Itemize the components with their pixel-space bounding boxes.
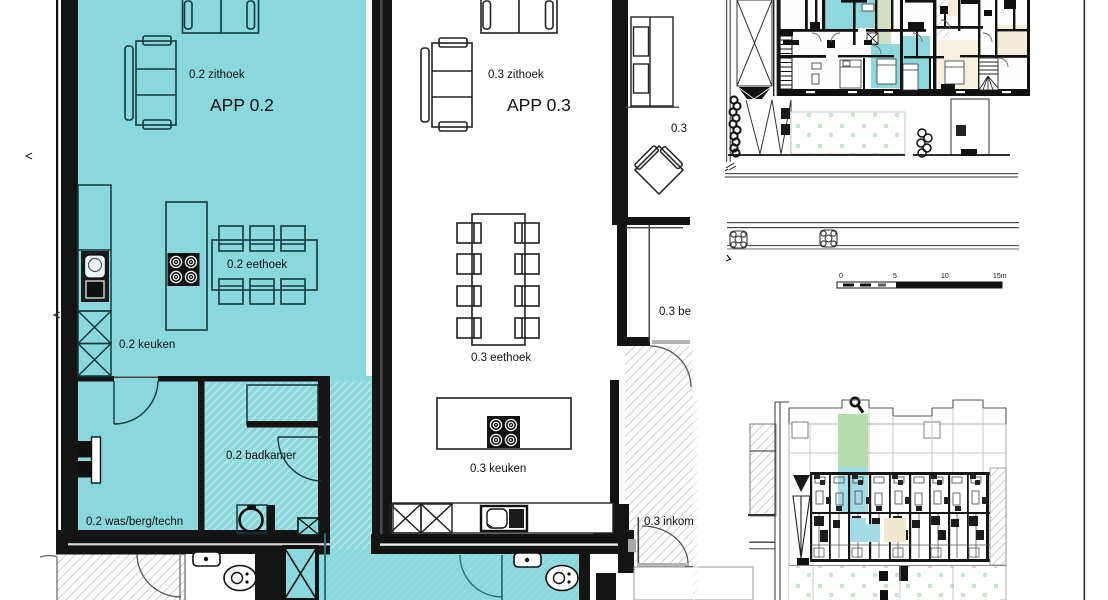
svg-text:5: 5 xyxy=(893,273,897,280)
svg-text:0.2 zithoek: 0.2 zithoek xyxy=(189,69,245,81)
svg-text:15m: 15m xyxy=(993,273,1007,280)
svg-text:0.3: 0.3 xyxy=(671,123,687,135)
svg-text:0.3 be: 0.3 be xyxy=(659,306,691,318)
svg-text:0.3 inkom: 0.3 inkom xyxy=(644,516,694,528)
svg-text:APP 0.2: APP 0.2 xyxy=(210,95,274,115)
svg-text:0.2 badkamer: 0.2 badkamer xyxy=(226,450,296,462)
svg-text:APP 0.3: APP 0.3 xyxy=(507,95,571,115)
svg-text:0.2 keuken: 0.2 keuken xyxy=(119,339,175,351)
svg-text:0.2 was/berg/techn: 0.2 was/berg/techn xyxy=(86,516,183,528)
svg-text:0.3 zithoek: 0.3 zithoek xyxy=(488,69,544,81)
svg-text:0.3 eethoek: 0.3 eethoek xyxy=(471,352,531,364)
svg-text:0.3 keuken: 0.3 keuken xyxy=(470,463,526,475)
svg-text:10: 10 xyxy=(941,273,949,280)
svg-text:0: 0 xyxy=(839,273,843,280)
svg-text:0.2 eethoek: 0.2 eethoek xyxy=(227,259,287,271)
